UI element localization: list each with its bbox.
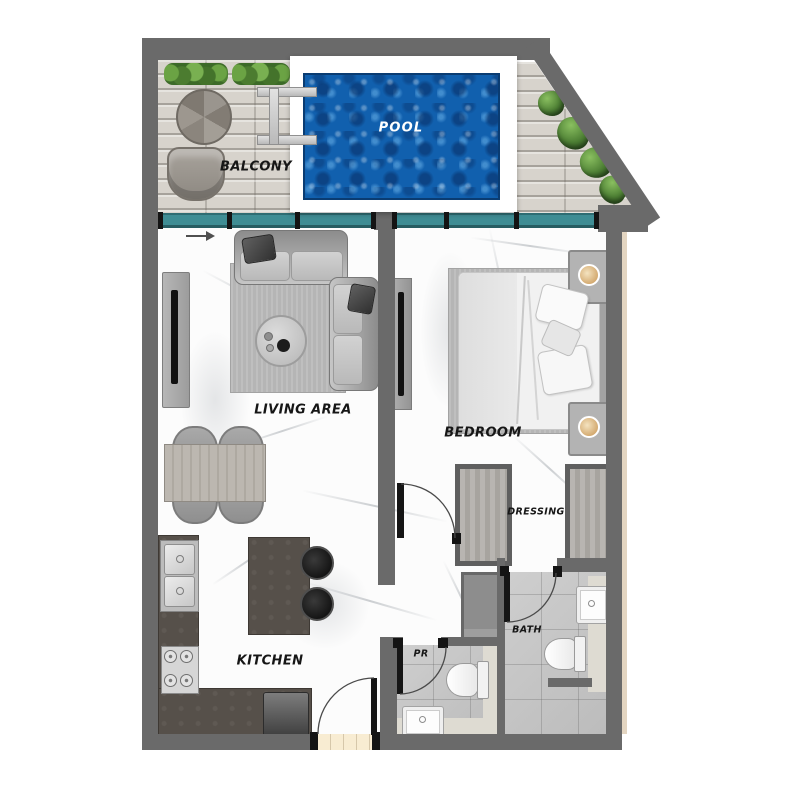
- bedroom-label: BEDROOM: [444, 426, 521, 441]
- balcony-label: BALCONY: [220, 160, 292, 175]
- living-area-label: LIVING AREA: [254, 403, 352, 418]
- bath-label: BATH: [512, 625, 542, 636]
- dressing-label: DRESSING: [507, 507, 565, 518]
- bath-door-arc: [507, 573, 556, 622]
- pool-label: POOL: [379, 121, 424, 136]
- kitchen-label: KITCHEN: [237, 654, 304, 669]
- floor-plan: BALCONY POOL LIVING AREA BEDROOM DRESSIN…: [0, 0, 800, 800]
- bedroom-door-arc: [401, 484, 455, 538]
- entry-door-arc: [318, 678, 374, 734]
- pr-label: PR: [413, 649, 428, 660]
- entry-arrow: [186, 231, 215, 241]
